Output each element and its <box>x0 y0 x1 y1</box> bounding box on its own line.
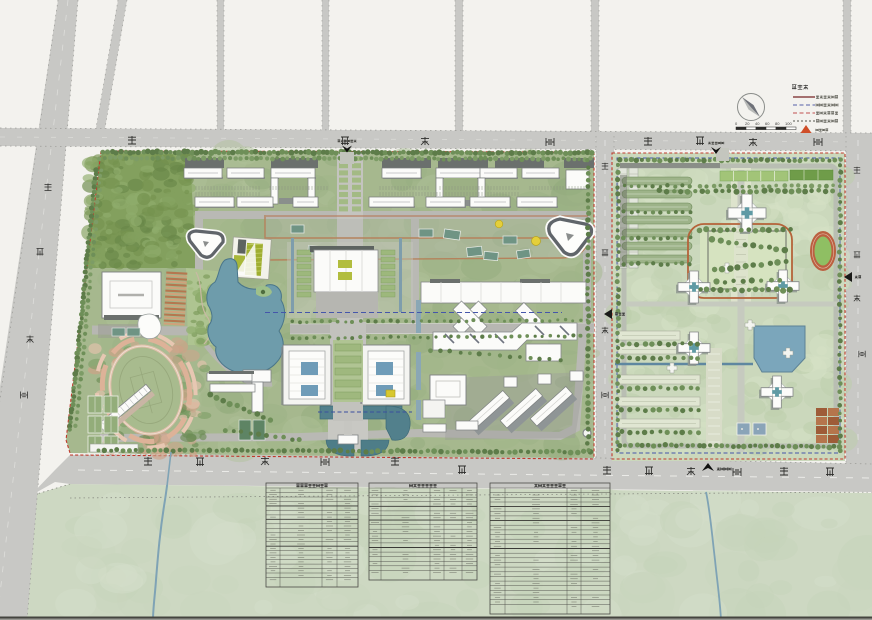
svg-text:80: 80 <box>775 121 780 126</box>
svg-text:100: 100 <box>785 121 792 126</box>
svg-text:20: 20 <box>745 121 750 126</box>
svg-text:40: 40 <box>755 121 760 126</box>
svg-text:60: 60 <box>765 121 770 126</box>
